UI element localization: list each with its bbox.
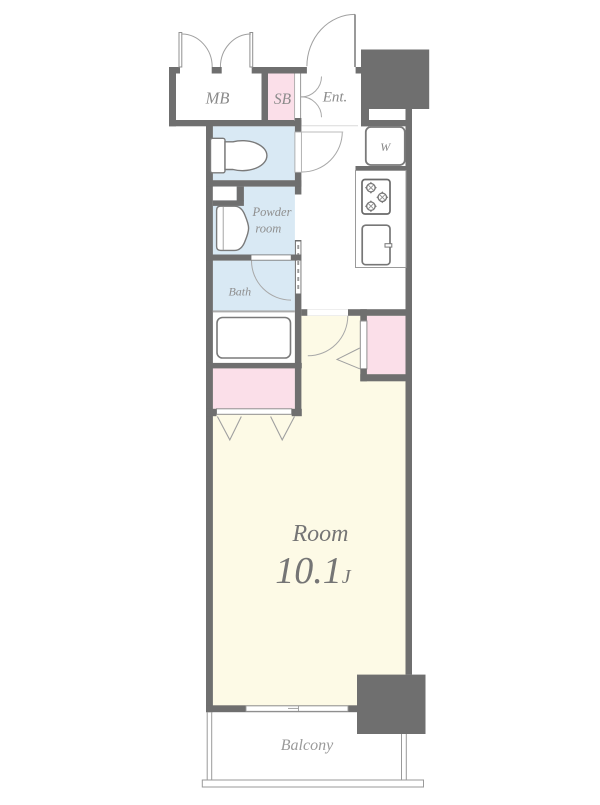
svg-text:Room: Room [292, 521, 349, 547]
svg-text:10.1J: 10.1J [275, 550, 352, 592]
svg-text:Balcony: Balcony [281, 737, 334, 754]
svg-text:W: W [380, 140, 391, 154]
svg-text:Powder: Powder [252, 205, 292, 219]
svg-text:SB: SB [274, 91, 292, 108]
svg-text:Bath: Bath [228, 284, 251, 298]
svg-text:Ent.: Ent. [322, 90, 348, 106]
svg-text:MB: MB [205, 89, 230, 108]
svg-text:room: room [255, 222, 281, 236]
